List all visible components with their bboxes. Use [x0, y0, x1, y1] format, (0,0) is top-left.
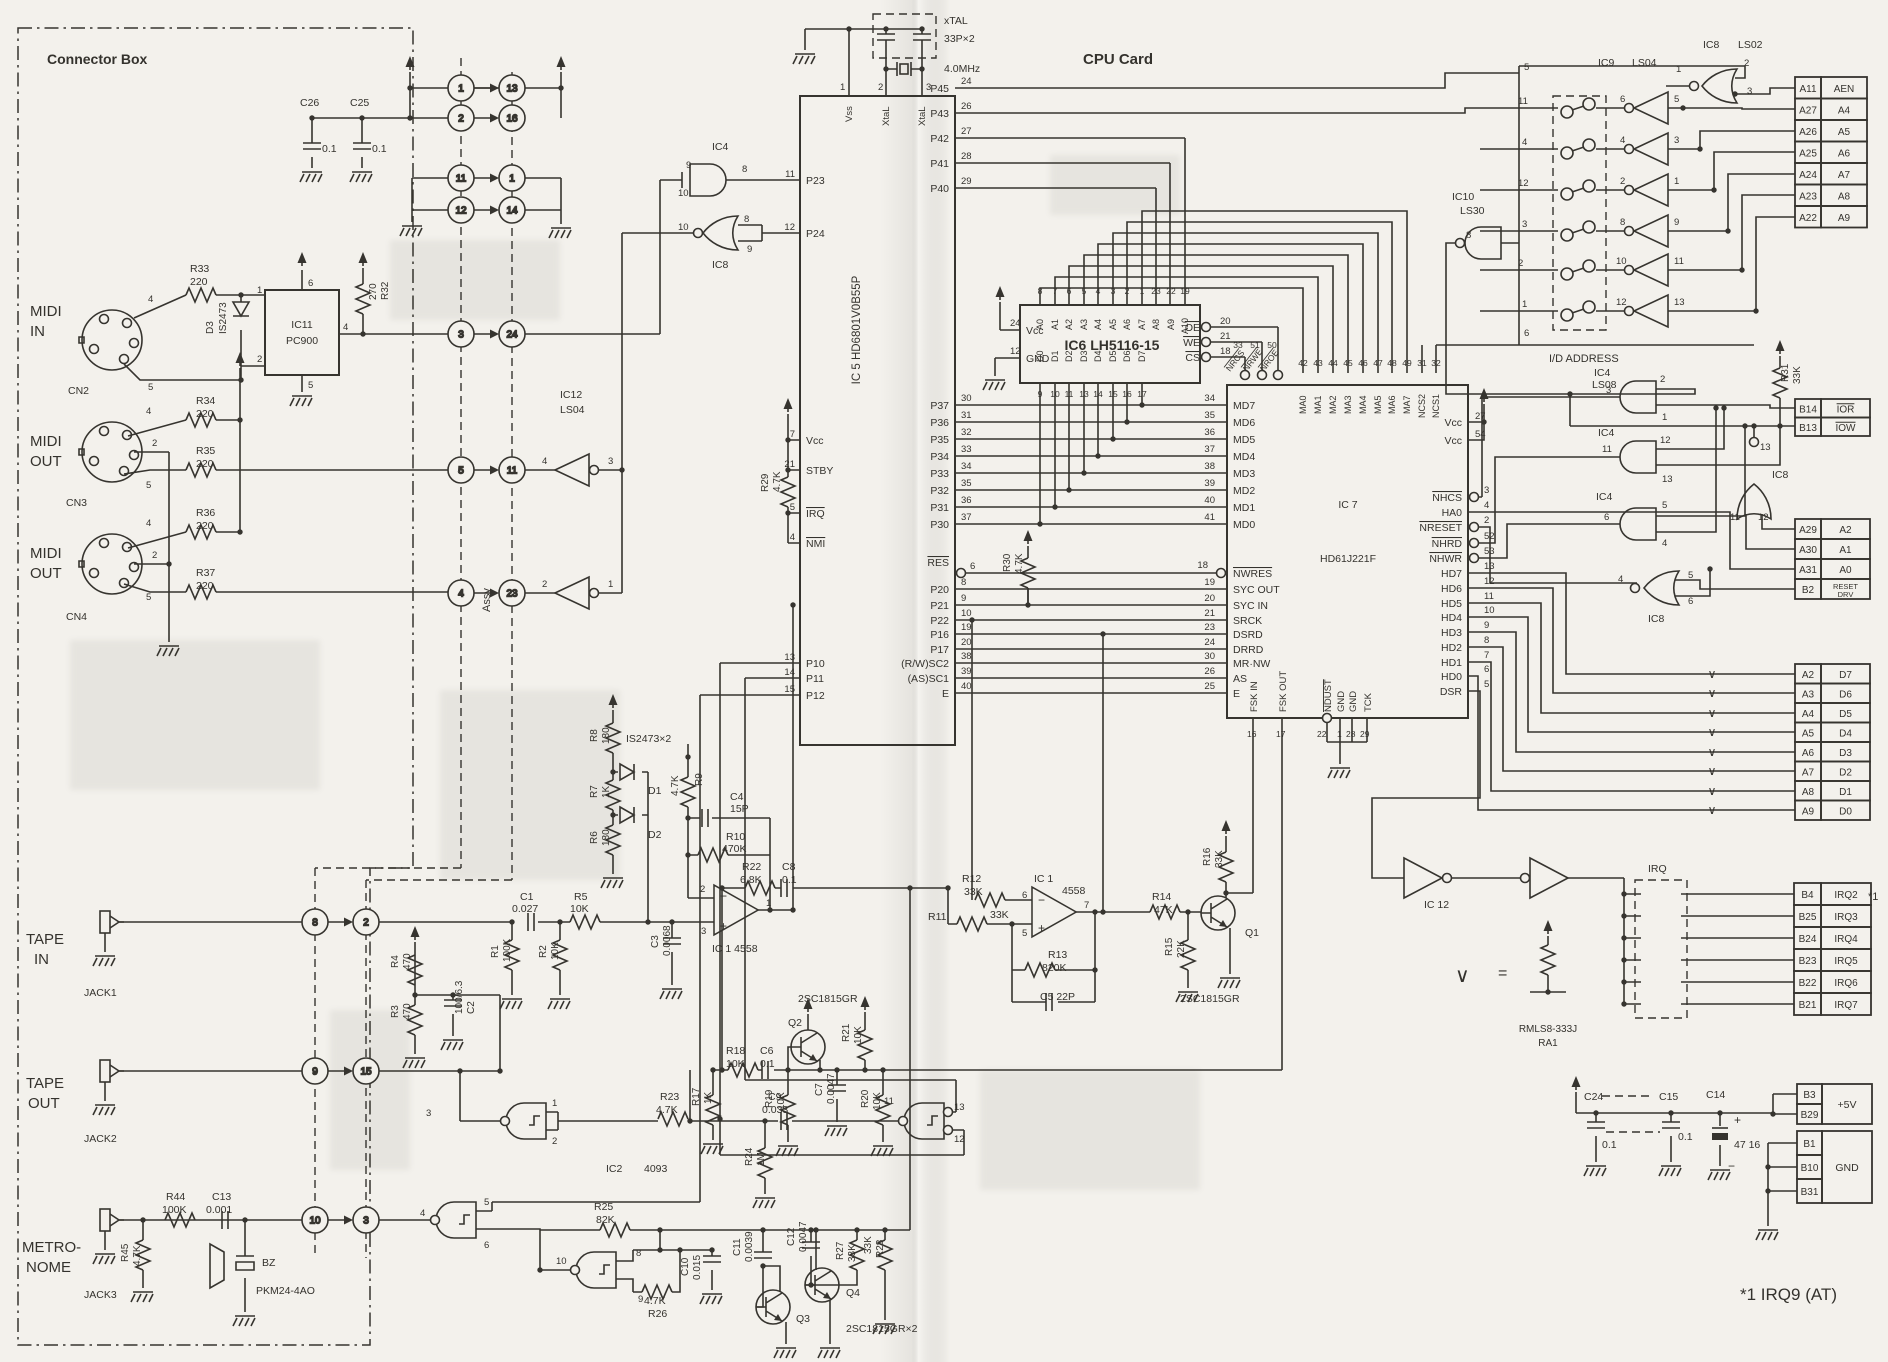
label-227: 38	[1204, 461, 1215, 472]
ic1b-part: 4558	[1062, 885, 1086, 897]
ic8-top-name: IC8	[1703, 39, 1720, 51]
label-106: 2	[257, 354, 262, 365]
ior-iow-table-pin: B13	[1799, 423, 1817, 434]
ior-iow-table-signal: IOW	[1836, 423, 1857, 434]
label-418: 1	[766, 898, 771, 909]
connector-pin-number: 9	[312, 1067, 318, 1078]
label-309: 4	[1522, 137, 1527, 148]
label-51: P36	[930, 417, 949, 429]
label-414: R10	[726, 831, 745, 843]
connector-pin-number: 24	[506, 330, 518, 341]
label-487: R26	[648, 1308, 667, 1320]
data-bus-table-signal: D5	[1839, 709, 1852, 720]
label-66: 8	[961, 577, 966, 588]
irq-table-signal: IRQ6	[1834, 978, 1858, 989]
label-203: 46	[1358, 358, 1368, 368]
ic4-gate-label: IC4	[712, 141, 729, 153]
label-50: 31	[961, 410, 972, 421]
label-286: FSK OUT	[1278, 671, 1289, 712]
label-167: A9	[1166, 319, 1176, 330]
label-13: 1	[840, 82, 845, 93]
label-157: 19	[1180, 286, 1190, 296]
label-403: R7	[589, 785, 600, 798]
label-404: 1K	[601, 785, 612, 798]
label-338: 5	[1662, 500, 1667, 511]
q34-part: 2SC1815GR×2	[846, 1323, 918, 1335]
label-367: −	[1728, 1159, 1735, 1173]
label-56: 34	[961, 461, 972, 472]
label-164: A6	[1122, 319, 1132, 330]
label-120: 2	[152, 438, 157, 449]
connector-pin-number: 2	[363, 918, 369, 929]
label-259: 4	[1484, 500, 1489, 511]
label-37: P12	[806, 690, 825, 702]
label-289: GND	[1348, 691, 1359, 712]
label-336: IC4	[1596, 491, 1613, 503]
label-387: R3	[390, 1005, 401, 1018]
label-177: 9	[1038, 389, 1043, 399]
label-335: 13	[1662, 474, 1673, 485]
label-318: 3	[1674, 135, 1679, 146]
label-70: 10	[961, 608, 972, 619]
connector-pin-number: 16	[506, 114, 518, 125]
label-477: 12	[954, 1134, 965, 1145]
label-170: D1	[1050, 350, 1060, 362]
connector-pin-number: 10	[309, 1216, 321, 1227]
label-183: 16	[1122, 389, 1132, 399]
reset-addr-table-signal: A0	[1839, 565, 1852, 576]
label-237: 19	[1204, 577, 1215, 588]
label-276: HD3	[1441, 627, 1462, 639]
label-328: IC4	[1594, 367, 1611, 379]
reset-addr-table-pin: B2	[1802, 585, 1815, 596]
label-446: R18	[726, 1045, 745, 1057]
label-154: 1	[1140, 286, 1145, 296]
irq-table-pin: B22	[1799, 978, 1817, 989]
label-491: 0.0039	[744, 1231, 755, 1262]
label-293: 22	[1317, 729, 1327, 739]
power-gnd-table-pin: B31	[1801, 1187, 1819, 1198]
label-109: 4	[343, 322, 348, 333]
connector-box-title: Connector Box	[47, 51, 148, 67]
label-340: R31	[1780, 363, 1791, 382]
irq-table-pin: B25	[1799, 912, 1817, 923]
data-bus-table-signal: D2	[1839, 767, 1852, 778]
label-494: R27	[835, 1241, 846, 1260]
label-93: 4.7K	[1014, 553, 1025, 574]
label-35: P11	[806, 673, 824, 685]
label-467: 0.033	[762, 1104, 788, 1116]
label-166: A8	[1151, 319, 1161, 330]
label-310: 12	[1518, 178, 1529, 189]
label-343: IC8	[1772, 469, 1789, 481]
ic8-gate-label: IC8	[712, 259, 729, 271]
label-441: 33K	[1214, 850, 1225, 868]
label-241: 21	[1204, 608, 1215, 619]
label-213: MA4	[1358, 395, 1368, 414]
label-480: 6	[484, 1240, 489, 1251]
label-287: NDUST	[1323, 679, 1334, 712]
label-221: 35	[1204, 410, 1215, 421]
label-402: 180	[601, 727, 612, 744]
ic2-part: 4093	[644, 1163, 668, 1175]
label-172: D3	[1079, 350, 1089, 362]
label-226: MD4	[1233, 451, 1255, 463]
label-444: R17	[691, 1087, 702, 1106]
label-255: 54	[1475, 429, 1486, 440]
label-352: ∨	[1708, 706, 1717, 720]
label-398: 10K	[550, 942, 561, 960]
label-364: 0.1	[1678, 1131, 1693, 1143]
label-269: 12	[1484, 576, 1495, 587]
label-266: NHWR	[1429, 553, 1462, 565]
label-285: FSK IN	[1249, 681, 1260, 712]
label-306: 8	[1466, 230, 1471, 241]
ic10-part: LS30	[1460, 205, 1485, 217]
power-gnd-table-pin: B10	[1801, 1163, 1819, 1174]
label-159: A1	[1050, 319, 1060, 330]
label-163: A5	[1108, 319, 1118, 330]
label-292: 17	[1276, 729, 1286, 739]
io-address-table-pin: A24	[1799, 170, 1817, 181]
label-215: MA6	[1387, 395, 1397, 414]
label-49: P37	[930, 400, 949, 412]
label-121: 5	[146, 480, 151, 491]
label-202: 45	[1343, 358, 1353, 368]
label-72: 19	[961, 622, 972, 633]
label-437: 47K	[1154, 904, 1173, 916]
label-76: 38	[961, 651, 972, 662]
label-496: 33K	[863, 1236, 874, 1254]
label-20: 11	[785, 169, 795, 180]
label-180: 13	[1079, 389, 1089, 399]
label-294: 1	[1337, 729, 1342, 739]
label-252: E	[1233, 688, 1240, 700]
label-277: 8	[1484, 635, 1489, 646]
label-58: 35	[961, 478, 972, 489]
label-153: 2	[1125, 286, 1130, 296]
label-448: C6	[760, 1045, 774, 1057]
label-77: (R/W)SC2	[901, 658, 949, 670]
cpu-card-title: CPU Card	[1083, 51, 1153, 68]
label-210: MA1	[1313, 395, 1323, 414]
label-324: 11	[1674, 256, 1684, 267]
legend-eq: =	[1498, 965, 1507, 982]
irq-table-signal: IRQ2	[1834, 890, 1858, 901]
label-23: P24	[806, 228, 825, 240]
irq-table-signal: IRQ3	[1834, 912, 1858, 923]
label-16: Vss	[844, 106, 855, 122]
label-302: 2	[1744, 58, 1749, 69]
label-323: 10	[1616, 256, 1627, 267]
label-84: 10	[678, 188, 689, 199]
label-214: MA5	[1373, 395, 1383, 414]
q2-label: Q2	[788, 1017, 802, 1029]
label-390: C2	[466, 1001, 477, 1014]
label-47: P40	[930, 183, 949, 195]
label-200: 43	[1313, 358, 1323, 368]
label-337: 6	[1604, 512, 1609, 523]
label-48: 30	[961, 393, 972, 404]
label-483: 9	[638, 1294, 643, 1305]
label-222: MD6	[1233, 417, 1255, 429]
label-279: 7	[1484, 650, 1489, 661]
label-110: 270	[368, 283, 379, 300]
label-130: 2	[152, 550, 157, 561]
label-188: 21	[1220, 331, 1231, 342]
label-240: SYC IN	[1233, 600, 1268, 612]
power-5v-table-pin: B3	[1803, 1090, 1816, 1101]
label-406: 180	[601, 829, 612, 846]
label-317: 4	[1620, 135, 1625, 146]
label-280: HD1	[1441, 657, 1462, 669]
label-140: 2	[542, 579, 547, 590]
label-273: 10	[1484, 605, 1495, 616]
label-354: ∨	[1708, 745, 1717, 759]
connector-pin-number: 15	[360, 1067, 372, 1078]
label-348: 6	[1688, 596, 1693, 607]
label-388: 470	[402, 1003, 413, 1020]
label-429: −	[1038, 893, 1045, 907]
data-bus-table-signal: D6	[1839, 689, 1852, 700]
reset-addr-table-signal: A2	[1839, 525, 1852, 536]
label-242: SRCK	[1233, 615, 1262, 627]
irq-table-signal: IRQ5	[1834, 956, 1858, 967]
power-gnd-table-signal: GND	[1835, 1162, 1859, 1174]
label-321: 8	[1620, 217, 1625, 228]
connector-pin-number: 3	[363, 1216, 369, 1227]
label-125: 220	[196, 458, 214, 470]
label-176: D7	[1137, 350, 1147, 362]
connector-pin-number: 4	[458, 589, 464, 600]
label-459: 10K	[853, 1026, 864, 1044]
label-232: MD1	[1233, 502, 1255, 514]
label-357: ∨	[1708, 803, 1717, 817]
label-79: (AS)SC1	[908, 673, 950, 685]
label-244: DSRD	[1233, 629, 1263, 641]
label-399: C3	[650, 935, 661, 948]
connector-pin-number: 11	[456, 174, 467, 185]
label-341: 33K	[1792, 366, 1803, 384]
midi-out2-label1: MIDI	[30, 545, 62, 562]
label-458: R21	[841, 1023, 852, 1042]
label-25: Vcc	[806, 435, 824, 447]
reset-addr-table-pin: A31	[1799, 565, 1817, 576]
label-271: 11	[1484, 591, 1494, 602]
label-485: 82K	[596, 1214, 615, 1226]
label-38: 24	[961, 76, 972, 87]
connector-pin-number: 23	[506, 589, 518, 600]
label-478: 4	[420, 1208, 425, 1219]
label-216: MA7	[1402, 395, 1412, 414]
label-379: C13	[212, 1191, 231, 1203]
label-14: 2	[878, 82, 883, 93]
metronome-label2: NOME	[26, 1259, 71, 1276]
label-133: 220	[196, 520, 214, 532]
data-bus-table-pin: A4	[1802, 709, 1815, 720]
label-81: E	[942, 688, 949, 700]
label-135: 220	[196, 580, 214, 592]
label-90: R29	[760, 473, 771, 492]
label-329: 3	[1606, 385, 1611, 396]
label-411: 4.7K	[670, 775, 681, 796]
label-381: R45	[120, 1243, 131, 1262]
label-44: 28	[961, 151, 972, 162]
ic9-name: IC9	[1598, 57, 1615, 69]
label-173: D4	[1093, 350, 1103, 362]
io-address-table-pin: A26	[1799, 127, 1817, 138]
label-447: 10K	[726, 1058, 745, 1070]
label-190: 18	[1220, 346, 1231, 357]
label-283: 5	[1484, 679, 1489, 690]
cn3-label: CN3	[66, 497, 87, 509]
label-391: C1	[520, 891, 534, 903]
io-address-table-signal: A9	[1838, 213, 1851, 224]
label-55: P34	[930, 451, 949, 463]
label-462: C8	[782, 861, 796, 873]
label-457: 10K	[872, 1092, 883, 1110]
power-5v-table-signal: +5V	[1838, 1099, 1857, 1111]
label-474: 2	[552, 1136, 557, 1147]
irq-table-signal: IRQ4	[1834, 934, 1858, 945]
label-212: MA3	[1343, 395, 1353, 414]
connector-pin-number: 11	[507, 466, 518, 477]
label-155: 23	[1151, 286, 1161, 296]
label-250: AS	[1233, 673, 1247, 685]
label-416: 2	[700, 884, 705, 895]
irq-header: IRQ	[1648, 863, 1667, 875]
label-83: 9	[686, 160, 691, 171]
label-143: 24	[1010, 318, 1021, 329]
label-409: D2	[648, 829, 662, 841]
label-264: NHRD	[1432, 538, 1463, 550]
label-62: 37	[961, 512, 972, 523]
label-486: 4.7K	[644, 1295, 666, 1307]
label-31: NMI	[806, 538, 825, 550]
label-100: 220	[190, 276, 208, 288]
label-258: NHCS	[1432, 492, 1462, 504]
label-311: 3	[1522, 219, 1527, 230]
label-339: 4	[1662, 538, 1667, 549]
ic7-part: HD61J221F	[1320, 553, 1376, 565]
label-430: +	[1038, 921, 1045, 935]
label-288: GND	[1336, 691, 1347, 712]
label-377: R44	[166, 1191, 185, 1203]
label-316: 5	[1674, 94, 1679, 105]
label-199: 42	[1298, 358, 1308, 368]
label-26: 21	[784, 459, 795, 470]
connector-pin-number: 5	[458, 466, 464, 477]
ior-iow-table-pin: B14	[1799, 404, 1817, 415]
label-436: R14	[1152, 891, 1171, 903]
label-233: 41	[1204, 512, 1215, 523]
ic10-name: IC10	[1452, 191, 1474, 203]
ic8-top-part: LS02	[1738, 39, 1763, 51]
label-17: XtaL	[881, 106, 892, 126]
irq-table-pin: B21	[1799, 1000, 1817, 1011]
label-281: 6	[1484, 664, 1489, 675]
label-162: A4	[1093, 319, 1103, 330]
label-290: TCK	[1363, 692, 1374, 712]
label-334: 12	[1660, 435, 1671, 446]
label-456: R20	[860, 1089, 871, 1108]
label-410: R9	[694, 773, 705, 786]
io-address-table-signal: A8	[1838, 191, 1851, 202]
label-433: R13	[1048, 949, 1067, 961]
label-59: P32	[930, 485, 949, 497]
label-397: R2	[538, 945, 549, 958]
label-479: 5	[484, 1197, 489, 1208]
label-108: 5	[308, 380, 313, 391]
ic12-part: LS04	[560, 404, 585, 416]
label-366: +	[1734, 1113, 1741, 1127]
label-53: P35	[930, 434, 949, 446]
midi-out1-label2: OUT	[30, 453, 62, 470]
label-204: 47	[1373, 358, 1383, 368]
label-361: C15	[1659, 1091, 1678, 1103]
label-33: P10	[806, 658, 825, 670]
midi-out1-label1: MIDI	[30, 433, 62, 450]
label-80: 40	[961, 681, 972, 692]
label-52: 32	[961, 427, 972, 438]
label-178: 10	[1050, 389, 1060, 399]
label-150: 5	[1082, 286, 1087, 296]
data-bus-table-pin: A3	[1802, 689, 1815, 700]
io-address-table-signal: A6	[1838, 148, 1851, 159]
data-bus-table-signal: D4	[1839, 728, 1852, 739]
label-319: 2	[1620, 176, 1625, 187]
label-41: P43	[930, 108, 949, 120]
label-263: 52	[1484, 531, 1495, 542]
data-bus-table-signal: D1	[1839, 787, 1852, 798]
label-87: 10	[678, 222, 689, 233]
io-address-table-signal: A7	[1838, 170, 1851, 181]
label-254: Vcc	[1444, 417, 1462, 429]
label-346: 4	[1618, 574, 1623, 585]
label-30: 4	[790, 532, 795, 543]
jack2-label: JACK2	[84, 1133, 117, 1145]
label-129: 4	[146, 518, 151, 529]
label-36: 15	[784, 684, 795, 695]
label-425: 33K	[990, 909, 1009, 921]
label-29: IRQ	[806, 508, 825, 520]
label-393: R5	[574, 891, 588, 903]
label-267: 13	[1484, 561, 1495, 572]
label-160: A2	[1064, 319, 1074, 330]
label-344: 11	[1730, 512, 1740, 523]
label-107: 6	[308, 278, 313, 289]
label-179: 11	[1065, 389, 1074, 399]
tape-out-label2: OUT	[28, 1095, 60, 1112]
label-389: 100/6.3	[454, 980, 465, 1014]
label-270: HD6	[1441, 583, 1462, 595]
assy-label: Assy	[481, 588, 493, 612]
label-165: A7	[1137, 319, 1147, 330]
label-275: 9	[1484, 620, 1489, 631]
ic1a-label: IC 1 4558	[712, 943, 758, 955]
label-472: 3	[426, 1108, 431, 1119]
label-493: 0.0047	[798, 1221, 809, 1252]
io-address-table-pin: A25	[1799, 148, 1817, 159]
ic2-name: IC2	[606, 1163, 623, 1175]
label-246: DRRD	[1233, 644, 1264, 656]
label-101: D3	[205, 321, 216, 334]
bz-part: PKM24-4AO	[256, 1285, 315, 1297]
io-address-table-pin: A27	[1799, 105, 1817, 116]
data-bus-table-pin: A5	[1802, 728, 1815, 739]
label-60: 36	[961, 495, 972, 506]
label-21: P23	[806, 175, 825, 187]
